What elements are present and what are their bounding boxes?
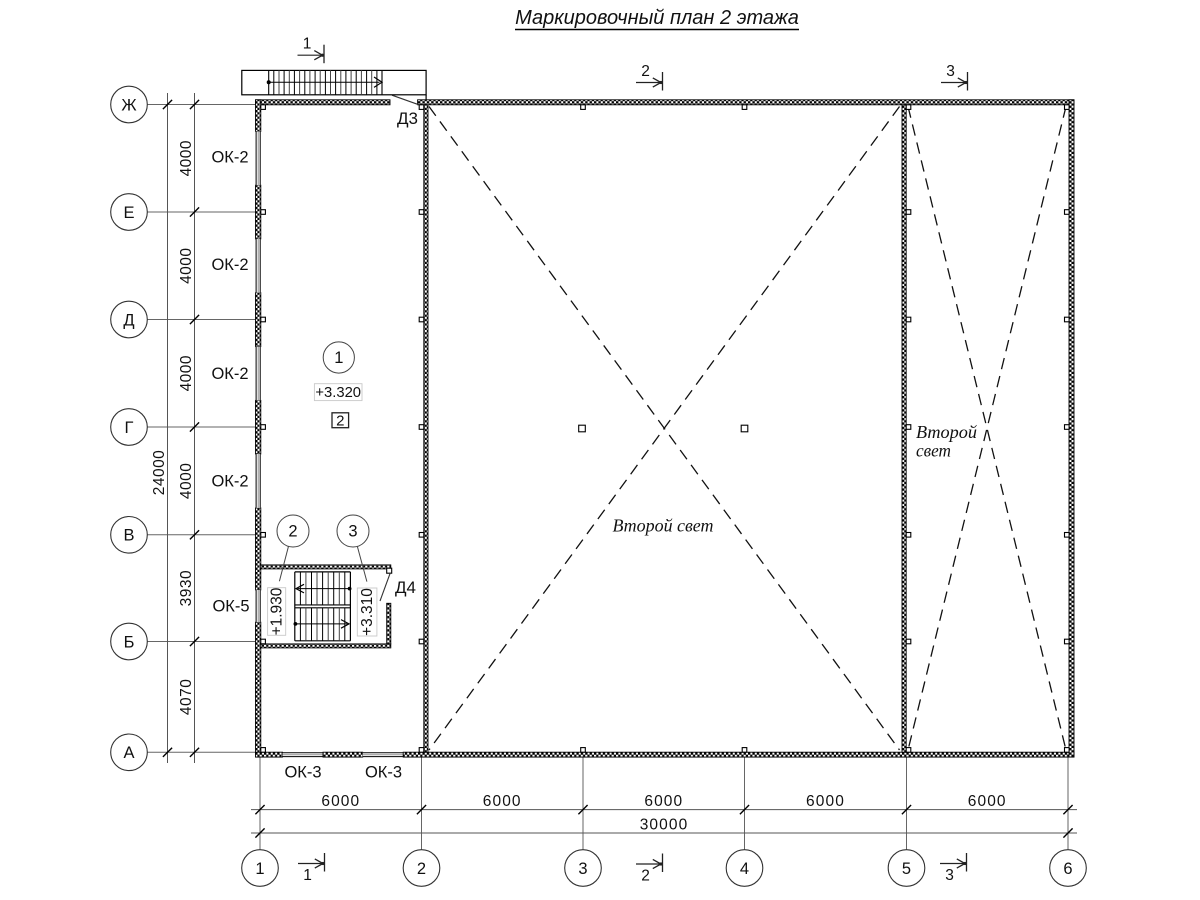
svg-text:6000: 6000 — [483, 793, 522, 810]
svg-text:6000: 6000 — [321, 793, 360, 810]
svg-text:Ж: Ж — [121, 96, 137, 114]
svg-text:6000: 6000 — [644, 793, 683, 810]
svg-text:3: 3 — [578, 860, 587, 878]
svg-text:3930: 3930 — [178, 570, 195, 606]
svg-text:3: 3 — [348, 523, 357, 541]
svg-text:+3.310: +3.310 — [359, 588, 376, 636]
svg-text:4000: 4000 — [178, 355, 195, 391]
svg-text:+1.930: +1.930 — [269, 587, 286, 635]
svg-text:2: 2 — [641, 868, 650, 885]
svg-text:3: 3 — [945, 867, 954, 884]
svg-text:6000: 6000 — [968, 793, 1007, 810]
svg-text:1: 1 — [334, 349, 343, 367]
svg-text:Д4: Д4 — [395, 578, 416, 597]
svg-text:ОК-3: ОК-3 — [365, 764, 402, 782]
svg-text:6: 6 — [1063, 860, 1072, 878]
svg-text:Е: Е — [123, 204, 134, 222]
svg-text:5: 5 — [902, 860, 911, 878]
svg-text:Б: Б — [124, 633, 135, 651]
svg-text:ОК-5: ОК-5 — [212, 598, 249, 616]
svg-text:4000: 4000 — [178, 140, 195, 176]
svg-text:4: 4 — [740, 860, 749, 878]
svg-text:ОК-2: ОК-2 — [211, 472, 248, 490]
svg-text:1: 1 — [303, 867, 312, 884]
svg-text:Д: Д — [123, 311, 134, 329]
svg-text:Д3: Д3 — [397, 109, 418, 128]
svg-text:1: 1 — [255, 860, 264, 878]
svg-text:30000: 30000 — [640, 817, 689, 834]
svg-text:24000: 24000 — [151, 450, 168, 496]
svg-text:Второй: Второй — [916, 422, 977, 442]
svg-text:свет: свет — [916, 441, 951, 461]
svg-text:1: 1 — [303, 36, 312, 53]
svg-text:Маркировочный план 2 этажа: Маркировочный план 2 этажа — [515, 7, 799, 29]
svg-text:6000: 6000 — [806, 793, 845, 810]
svg-text:2: 2 — [641, 63, 650, 80]
svg-text:+3.320: +3.320 — [315, 385, 361, 401]
svg-text:А: А — [123, 744, 134, 762]
svg-text:4000: 4000 — [178, 247, 195, 283]
svg-text:4000: 4000 — [178, 463, 195, 499]
svg-text:Г: Г — [125, 419, 134, 437]
svg-text:ОК-2: ОК-2 — [211, 256, 248, 274]
svg-text:ОК-3: ОК-3 — [284, 764, 321, 782]
svg-text:4070: 4070 — [178, 679, 195, 715]
svg-text:3: 3 — [946, 63, 955, 80]
svg-text:2: 2 — [417, 860, 426, 878]
svg-text:ОК-2: ОК-2 — [211, 365, 248, 383]
svg-text:В: В — [123, 527, 134, 545]
svg-text:ОК-2: ОК-2 — [211, 149, 248, 167]
svg-text:2: 2 — [336, 413, 344, 430]
svg-text:2: 2 — [288, 523, 297, 541]
svg-text:Второй свет: Второй свет — [613, 516, 714, 536]
